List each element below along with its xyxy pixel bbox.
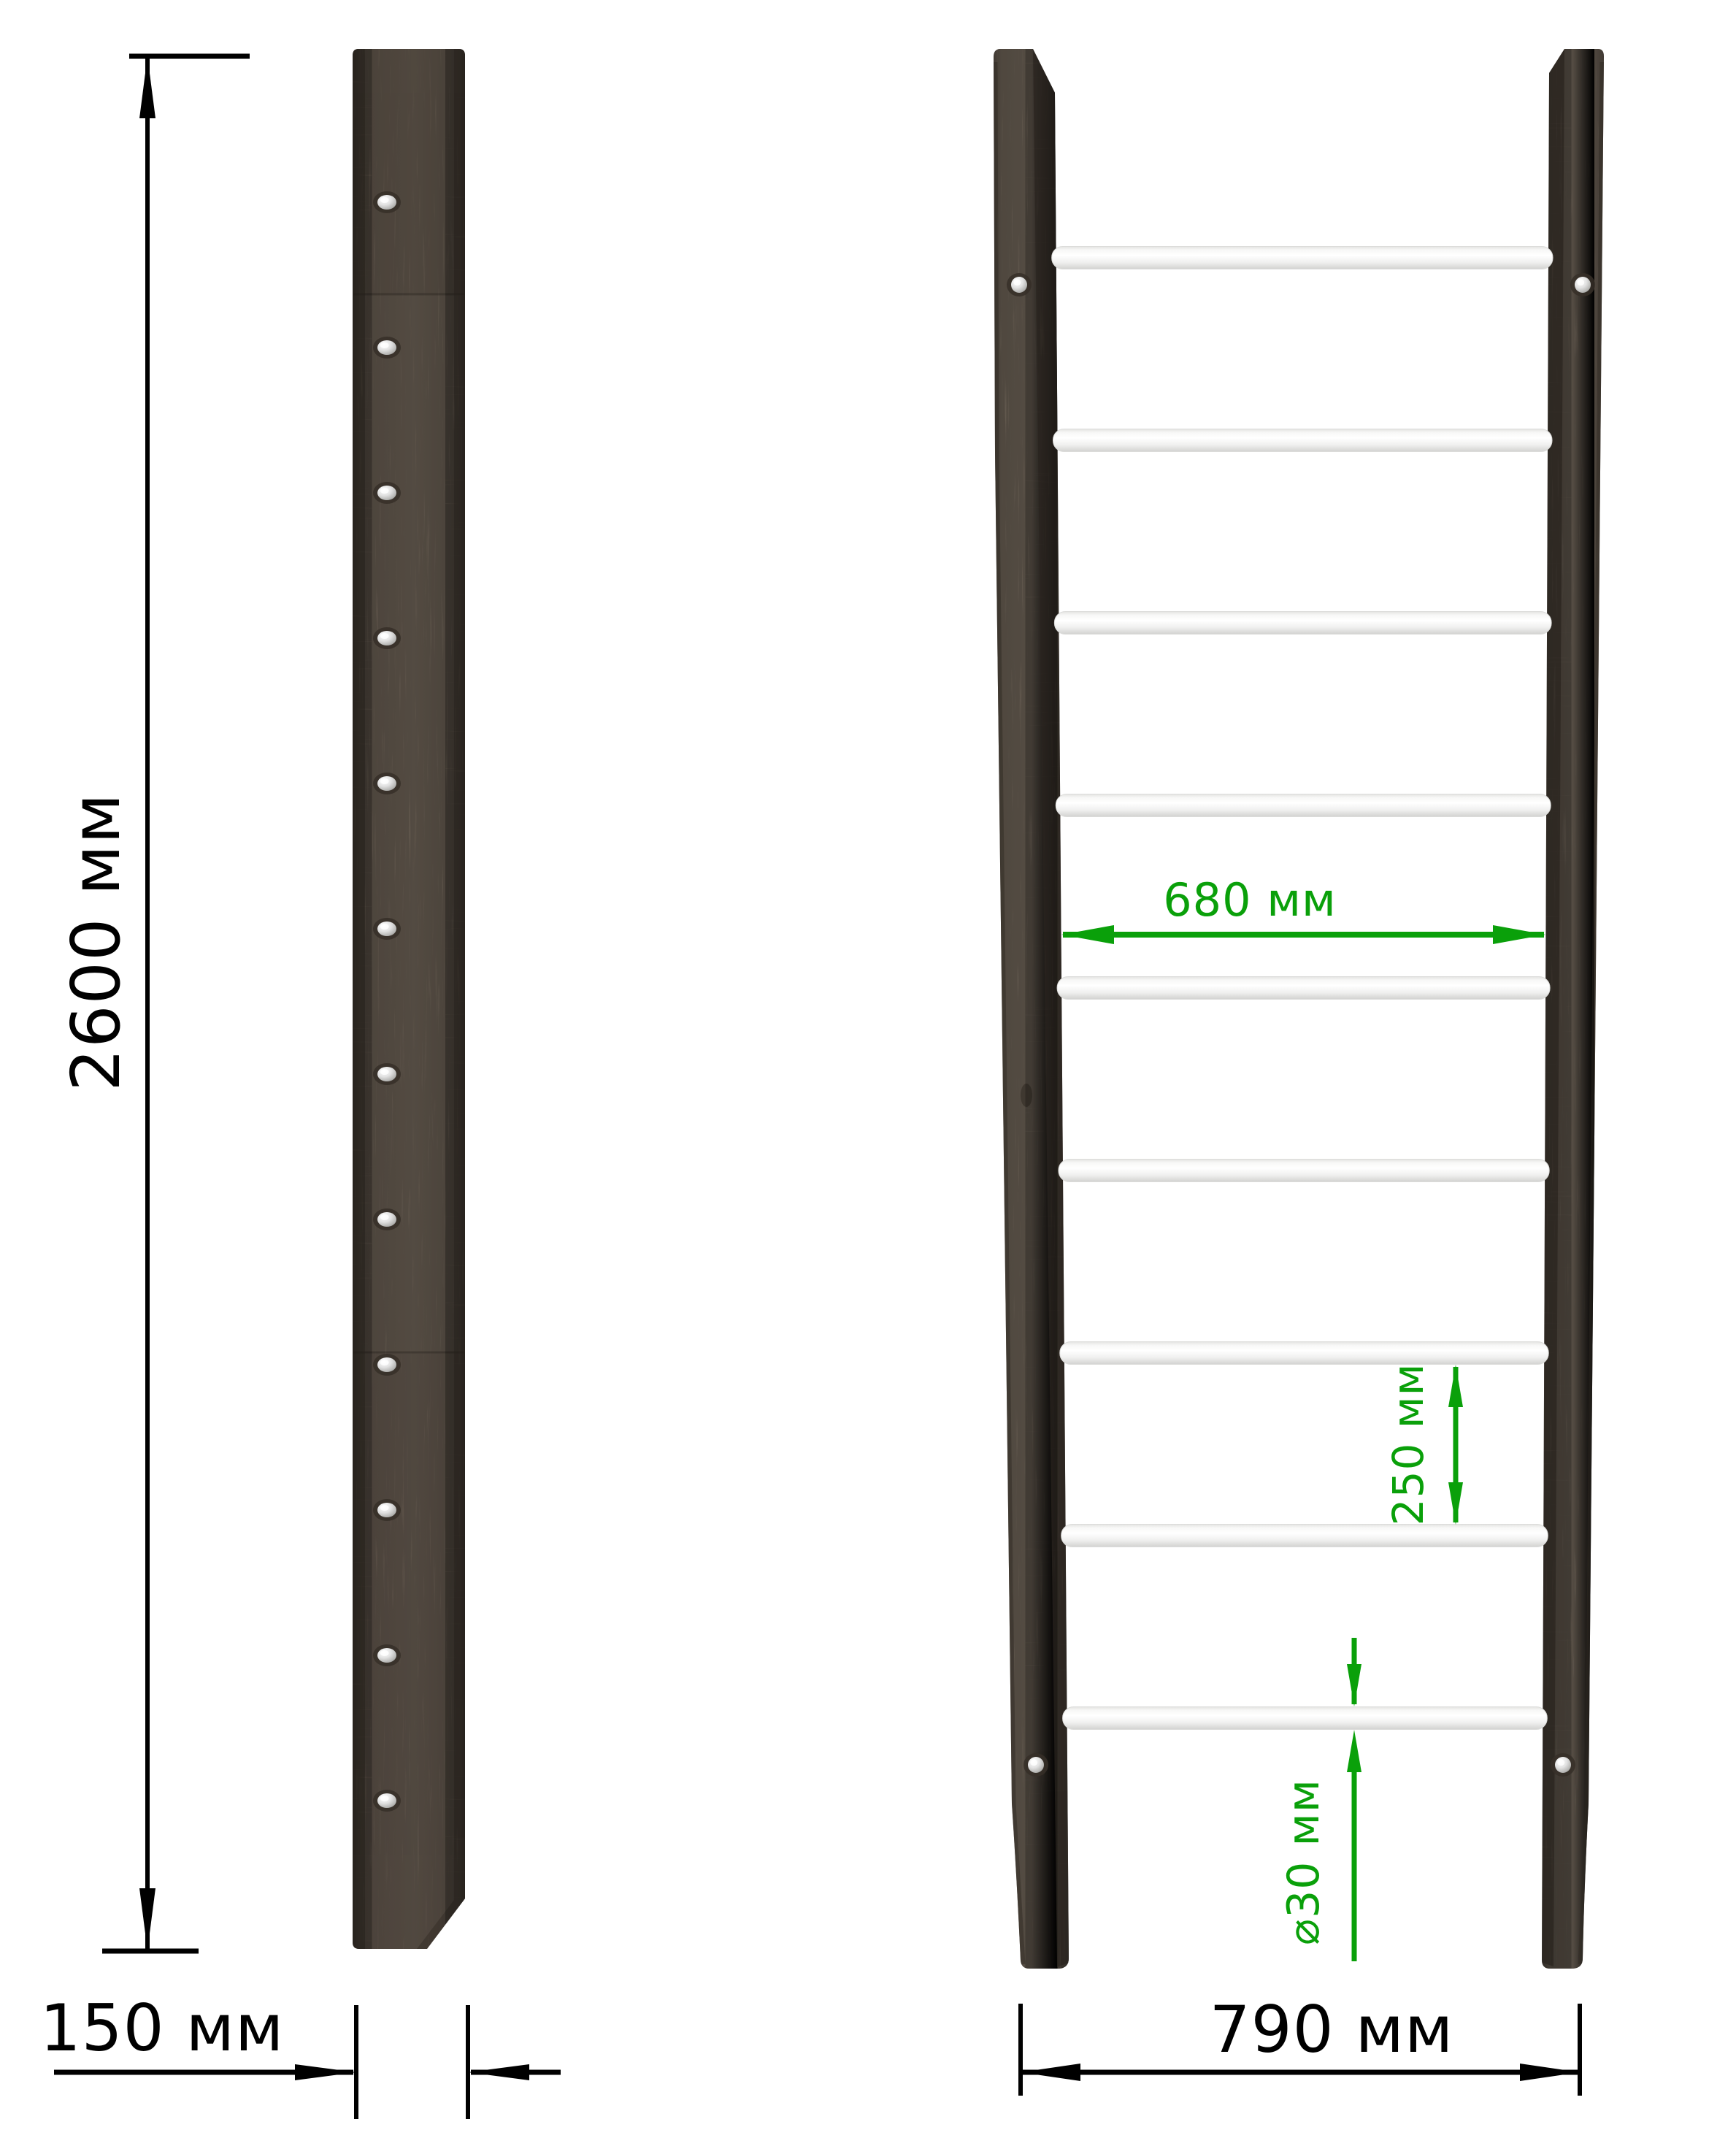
side-rail-edge-chatter (447, 44, 470, 1953)
screw-highlight (380, 1505, 389, 1511)
front-right-post-band-chatter (1537, 44, 1570, 1975)
drawing-canvas: 2600 мм 150 мм 790 мм 680 мм 250 мм ⌀ (0, 0, 1736, 2138)
width-arrow-right (1520, 2064, 1580, 2081)
rung-length-label: 680 мм (1163, 873, 1337, 927)
rung-diameter-label: ⌀30 мм (1278, 1779, 1329, 1945)
rung-gap-label: 250 мм (1383, 1363, 1433, 1526)
dim-rung-length: 680 мм (1061, 873, 1545, 944)
dim-rung-gap: 250 мм (1383, 1363, 1463, 1526)
screw-highlight (380, 488, 389, 494)
screw-highlight (380, 197, 389, 203)
screw-highlight (380, 1650, 389, 1656)
rungs-group (1052, 247, 1553, 1730)
rung-length-arrow-left (1061, 925, 1114, 944)
rung (1057, 977, 1550, 1000)
screw-highlight (1030, 1759, 1037, 1766)
rung (1053, 429, 1553, 452)
screw-highlight (380, 633, 389, 639)
rung (1063, 1707, 1548, 1730)
screw-highlight (380, 1360, 389, 1365)
rung (1061, 1525, 1548, 1547)
technical-drawing: 2600 мм 150 мм 790 мм 680 мм 250 мм ⌀ (0, 0, 1736, 2138)
front-left-post-band-chatter (1028, 44, 1073, 1975)
width-label: 790 мм (1210, 1992, 1454, 2067)
dim-thickness: 150 мм (40, 1991, 561, 2119)
screw (373, 1208, 401, 1230)
screw (373, 627, 401, 649)
screw (373, 1644, 401, 1666)
screw (373, 1499, 401, 1521)
height-arrow-down (139, 1888, 155, 1950)
rung (1054, 612, 1551, 635)
rung-gap-arrow-down (1448, 1482, 1463, 1525)
screw (373, 918, 401, 940)
thickness-arrow-left (468, 2064, 529, 2080)
dim-rung-diameter: ⌀30 мм (1278, 1638, 1361, 1961)
screw (373, 482, 401, 504)
screw-highlight (1013, 279, 1021, 286)
screw-highlight (1557, 1759, 1564, 1766)
thickness-arrow-right (295, 2064, 356, 2080)
rung (1060, 1342, 1548, 1365)
dim-height: 2600 мм (57, 56, 250, 1951)
front-screws-group (1007, 273, 1595, 1777)
thickness-label: 150 мм (40, 1991, 285, 2066)
rung (1052, 247, 1553, 269)
side-view (349, 44, 470, 1953)
height-arrow-up (139, 56, 155, 118)
screw-highlight (380, 1214, 389, 1220)
screw-highlight (380, 778, 389, 784)
screw (1023, 1753, 1048, 1777)
rung-diameter-arrow-up (1347, 1730, 1361, 1772)
screw (373, 191, 401, 213)
width-arrow-left (1021, 2064, 1080, 2081)
rung-length-arrow-right (1493, 925, 1545, 944)
screw (373, 1354, 401, 1376)
screw (373, 773, 401, 794)
rung (1059, 1160, 1549, 1182)
screw (1007, 273, 1032, 296)
screw-highlight (380, 924, 389, 930)
side-rail-edge-chatter (349, 44, 371, 1953)
screw (373, 1063, 401, 1085)
front-view (989, 44, 1610, 1975)
screw (1551, 1753, 1575, 1777)
screw-highlight (380, 1796, 389, 1801)
rung-diameter-arrow-down (1347, 1664, 1361, 1706)
screw-highlight (380, 1069, 389, 1075)
screw (373, 1790, 401, 1812)
screw (1570, 273, 1595, 296)
screw (373, 337, 401, 359)
screw-highlight (380, 342, 389, 348)
screw-highlight (1577, 279, 1584, 286)
rung-gap-arrow-up (1448, 1365, 1463, 1407)
dim-overall-width: 790 мм (1021, 1992, 1580, 2096)
height-label: 2600 мм (57, 792, 135, 1091)
rung (1056, 794, 1551, 817)
